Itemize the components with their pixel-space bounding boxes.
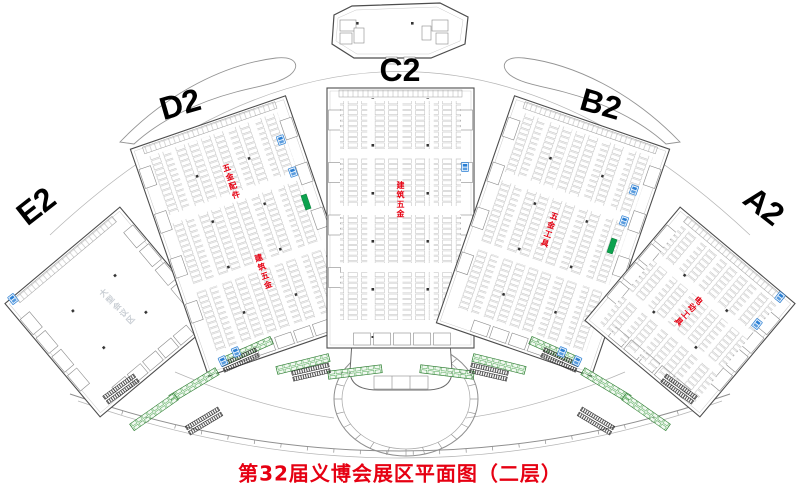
booth-grid [340,158,367,206]
booth-grid [434,158,461,206]
booth-grid [434,215,461,263]
facade-tick [201,430,202,434]
bottom-room [414,333,431,345]
facade-tick [572,436,573,440]
side-room [461,110,473,130]
booth-grid [403,215,430,263]
booth-grid [434,101,461,149]
facade-tick [228,436,229,440]
booth-grid [403,101,430,149]
floorplan-stage: E2 D2 C2 B2 A2 五金配件 建筑五金 建筑五金 五金工具 电动工具 … [0,0,800,491]
side-room [329,268,341,288]
booth-grid [340,101,367,149]
facade-tick [545,440,546,444]
booth-grid [340,215,367,263]
bottom-room [374,333,391,345]
facade-tick [598,430,599,434]
booth-grid [371,272,398,320]
bottom-room [354,333,371,345]
bottom-room [434,333,451,345]
booth-grid [371,215,398,263]
booth-grid [371,101,398,149]
booth-grid [371,158,398,206]
service-booth-strip [622,393,671,431]
facade-tick [254,440,255,444]
facade-tick [624,425,625,429]
facade-tick [175,425,176,429]
facade-tick [677,411,678,415]
floorplan-drawing [0,0,800,491]
facade-tick [122,411,123,415]
booth-grid [403,272,430,320]
toilet-icon [462,163,469,172]
top-annex-building [332,3,468,64]
side-room [329,110,341,130]
hall-entrance-band [339,90,462,97]
central-lobby [350,342,452,390]
side-room [329,215,341,235]
bottom-room [394,333,411,345]
side-room [329,163,341,183]
service-booth-strip [130,393,179,431]
booth-grid [403,158,430,206]
booth-grid [340,272,367,320]
front-facade-arc-inner [78,401,722,458]
